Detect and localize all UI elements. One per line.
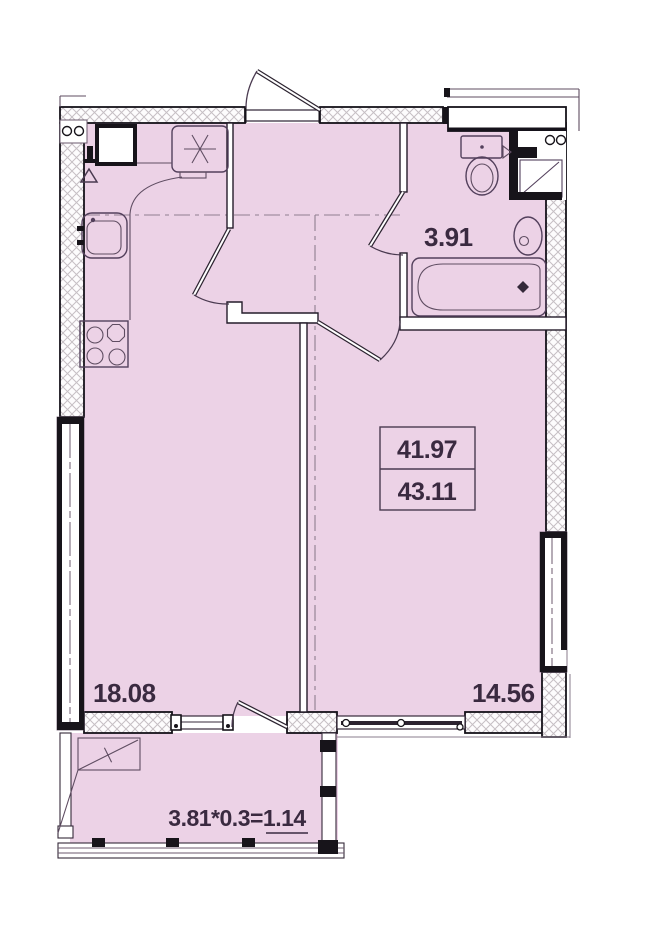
left-window — [57, 417, 84, 730]
right-window — [540, 532, 567, 672]
entrance-door — [245, 71, 320, 123]
left-wall — [60, 123, 84, 417]
bathroom-area-label: 3.91 — [424, 222, 473, 252]
bedroom-window — [337, 716, 465, 730]
bathroom-wall-upper — [400, 123, 407, 192]
bottom-wall-right — [465, 712, 546, 733]
pipe-risers-left — [60, 120, 87, 143]
top-wall-right — [448, 107, 566, 131]
balcony-window — [171, 715, 233, 730]
bathroom-wall-lower — [400, 253, 407, 320]
bathroom-bottom-wall — [400, 317, 566, 330]
top-wall-mid — [320, 107, 443, 123]
bottom-wall-left — [84, 712, 172, 733]
pipe-icon — [557, 136, 566, 145]
pipe-icon — [546, 136, 555, 145]
floor-plan-page: 3.91 18.08 14.56 41.97 43.11 3.81*0.3=1.… — [0, 0, 650, 950]
room-partition — [300, 323, 307, 712]
top-wall-left — [60, 107, 245, 123]
plumbing-shaft — [509, 131, 566, 200]
balcony-area-label: 3.81*0.3=1.14 — [168, 805, 306, 831]
kitchen-living-area-label: 18.08 — [93, 678, 156, 708]
bedroom-area-label: 14.56 — [472, 678, 535, 708]
balcony-rail-left — [60, 733, 71, 833]
floor-plan: 3.91 18.08 14.56 41.97 43.11 3.81*0.3=1.… — [0, 0, 650, 950]
living-area-value: 41.97 — [397, 436, 457, 464]
bottom-right-corner-wall — [542, 672, 566, 737]
bottom-wall-pier — [287, 712, 337, 733]
total-area-value: 43.11 — [398, 478, 457, 506]
